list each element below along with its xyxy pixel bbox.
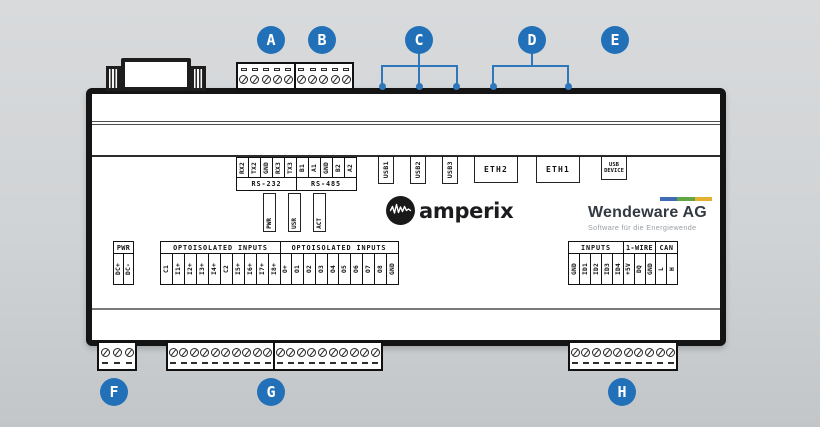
pin-gnd: GND	[569, 254, 579, 284]
terminal-blocks-g	[166, 341, 383, 371]
pin-rx3: RX3	[272, 158, 284, 177]
screw-terminal	[296, 343, 307, 369]
screw-terminal	[210, 343, 221, 369]
pin-l: L	[656, 254, 666, 284]
pin-o7: O7	[362, 254, 374, 284]
usb2-port: USB2	[410, 156, 426, 184]
marker-a: A	[257, 26, 285, 54]
opto-inputs-1-label: OPTOISOLATED INPUTS	[160, 241, 281, 254]
pin-gnd: GND	[645, 254, 656, 284]
rs232-block: RX2TX2GNDRX3TX3 RS-232	[236, 157, 297, 191]
usb1-port: USB1	[378, 156, 394, 184]
screw-terminal	[200, 343, 211, 369]
screw-terminal	[360, 343, 371, 369]
screw-terminal	[329, 64, 340, 88]
screw-terminal	[231, 343, 242, 369]
pin-id1: ID1	[579, 254, 590, 284]
screw-terminal	[249, 64, 260, 88]
rs485-block: B1A1GNDB2A2 RS-485	[296, 157, 357, 191]
pin-a1: A1	[308, 158, 320, 177]
usb-device-port: USB DEVICE	[601, 156, 627, 180]
bar-yellow	[695, 197, 712, 201]
pin-i4: I4+	[208, 254, 220, 284]
pin-i6: I6+	[244, 254, 256, 284]
pin-dc: DC-	[123, 254, 133, 284]
screw-terminal	[123, 343, 135, 369]
terminal-block-a	[236, 62, 296, 90]
wendeware-title: Wendeware AG	[588, 204, 712, 222]
dsub-screw-post-left	[106, 66, 121, 91]
eth2-port: ETH2	[474, 156, 518, 183]
screw-terminal	[370, 343, 381, 369]
wendeware-subtitle: Software für die Energiewende	[588, 223, 712, 232]
pin-o2: O2	[303, 254, 315, 284]
pin-i1: I1+	[172, 254, 184, 284]
pin-rx2: RX2	[237, 158, 248, 177]
serial-pin-block: RX2TX2GNDRX3TX3 RS-232 B1A1GNDB2A2 RS-48…	[236, 157, 357, 191]
screw-terminal	[602, 343, 613, 369]
terminal-block-b	[294, 62, 354, 90]
screw-terminal	[591, 343, 602, 369]
rs232-label: RS-232	[236, 178, 297, 191]
wendeware-color-bar	[660, 197, 712, 201]
amperix-wave-icon	[386, 196, 415, 225]
usr-led: USR	[288, 193, 301, 232]
pin-o6: O6	[350, 254, 362, 284]
screw-terminal	[317, 343, 328, 369]
pin-id2: ID2	[590, 254, 601, 284]
screw-terminal	[341, 64, 352, 88]
pin-tx2: TX2	[248, 158, 260, 177]
rs485-label: RS-485	[296, 178, 357, 191]
screw-terminal	[318, 64, 329, 88]
marker-b: B	[308, 26, 336, 54]
one-wire-label: 1-WIRE	[623, 241, 657, 254]
screw-terminal	[111, 343, 123, 369]
pin-i7: I7+	[256, 254, 268, 284]
enclosure-seam-bottom	[92, 308, 720, 310]
screw-terminal	[168, 343, 179, 369]
screw-terminal	[252, 343, 263, 369]
screw-terminal	[242, 343, 253, 369]
screw-terminal	[238, 64, 249, 88]
screw-terminal	[570, 343, 581, 369]
marker-f: F	[100, 378, 128, 406]
screw-terminal	[307, 64, 318, 88]
screw-terminal	[272, 64, 283, 88]
screw-terminal	[221, 343, 232, 369]
amperix-wordmark: amperix	[419, 199, 513, 223]
pwr-led: PWR	[263, 193, 276, 232]
screw-terminal	[665, 343, 676, 369]
bar-green	[677, 197, 694, 201]
screw-terminal	[179, 343, 190, 369]
wendeware-logo: Wendeware AG Software für die Energiewen…	[588, 197, 712, 232]
screw-terminal	[644, 343, 655, 369]
screw-terminal	[581, 343, 592, 369]
marker-g: G	[257, 378, 285, 406]
pin-gnd: GND	[386, 254, 398, 284]
right-io-block: INPUTS GNDID1ID2ID3ID4 1-WIRE +5VDQGND C…	[568, 241, 678, 285]
usb3-port: USB3	[442, 156, 458, 184]
pin-b1: B1	[297, 158, 308, 177]
opto-inputs-block-2: OPTOISOLATED INPUTS O+O1O2O3O4O5O6O7O8GN…	[280, 241, 399, 285]
pin-o5: O5	[338, 254, 350, 284]
screw-terminal	[634, 343, 645, 369]
eth1-port: ETH1	[536, 156, 580, 183]
pin-i3: I3+	[196, 254, 208, 284]
device-diagram: A B C D E F G H RX2TX2GNDRX3TX3 RS-232 B…	[0, 0, 820, 427]
one-wire-group: 1-WIRE +5VDQGND	[623, 241, 657, 285]
pin-5v: +5V	[624, 254, 634, 284]
terminal-block-g2	[273, 341, 383, 371]
screw-terminal	[260, 64, 271, 88]
pin-b2: B2	[332, 158, 344, 177]
screw-terminal	[612, 343, 623, 369]
pin-dq: DQ	[634, 254, 645, 284]
marker-h: H	[608, 378, 636, 406]
screw-terminal	[285, 343, 296, 369]
screw-terminal	[99, 343, 111, 369]
can-label: CAN	[655, 241, 678, 254]
screw-terminal	[655, 343, 666, 369]
pin-i5: I5+	[232, 254, 244, 284]
screw-terminal	[307, 343, 318, 369]
pin-i2: I2+	[184, 254, 196, 284]
marker-c: C	[405, 26, 433, 54]
dsub-connector	[121, 58, 191, 91]
terminal-block-g1	[166, 341, 275, 371]
pin-tx3: TX3	[284, 158, 296, 177]
screw-terminal	[296, 64, 307, 88]
pin-a2: A2	[344, 158, 356, 177]
screw-terminal	[328, 343, 339, 369]
power-label: PWR	[113, 241, 134, 254]
pin-dc: DC+	[114, 254, 123, 284]
screw-terminal	[189, 343, 200, 369]
pin-o8: O8	[374, 254, 386, 284]
screw-terminal	[283, 64, 294, 88]
marker-d: D	[518, 26, 546, 54]
pin-i8: I8+	[268, 254, 280, 284]
pin-gnd: GND	[260, 158, 272, 177]
amperix-logo: amperix	[386, 196, 513, 225]
screw-terminal	[349, 343, 360, 369]
opto-inputs-block-1: OPTOISOLATED INPUTS C1I1+I2+I3+I4+C2I5+I…	[160, 241, 281, 285]
pin-h: H	[666, 254, 677, 284]
pin-o1: O1	[291, 254, 303, 284]
screw-terminal	[338, 343, 349, 369]
inputs-label: INPUTS	[568, 241, 624, 254]
opto-inputs-2-label: OPTOISOLATED INPUTS	[280, 241, 399, 254]
enclosure-seam-top	[92, 121, 720, 125]
pin-gnd: GND	[320, 158, 332, 177]
pin-o: O+	[281, 254, 292, 284]
screw-terminal	[623, 343, 634, 369]
screw-terminal	[263, 343, 274, 369]
can-group: CAN LH	[655, 241, 678, 285]
pin-id3: ID3	[601, 254, 612, 284]
top-terminal-blocks	[236, 62, 354, 90]
pin-c1: C1	[161, 254, 172, 284]
pin-o3: O3	[315, 254, 327, 284]
dsub-screw-post-right	[191, 66, 206, 91]
terminal-block-f	[97, 341, 137, 371]
marker-e: E	[601, 26, 629, 54]
pin-c2: C2	[220, 254, 232, 284]
pin-id4: ID4	[612, 254, 623, 284]
power-block: PWR DC+DC-	[113, 241, 134, 285]
screw-terminal	[275, 343, 286, 369]
bar-blue	[660, 197, 677, 201]
terminal-block-h	[568, 341, 678, 371]
act-led: ACT	[313, 193, 326, 232]
pin-o4: O4	[327, 254, 339, 284]
inputs-group: INPUTS GNDID1ID2ID3ID4	[568, 241, 624, 285]
